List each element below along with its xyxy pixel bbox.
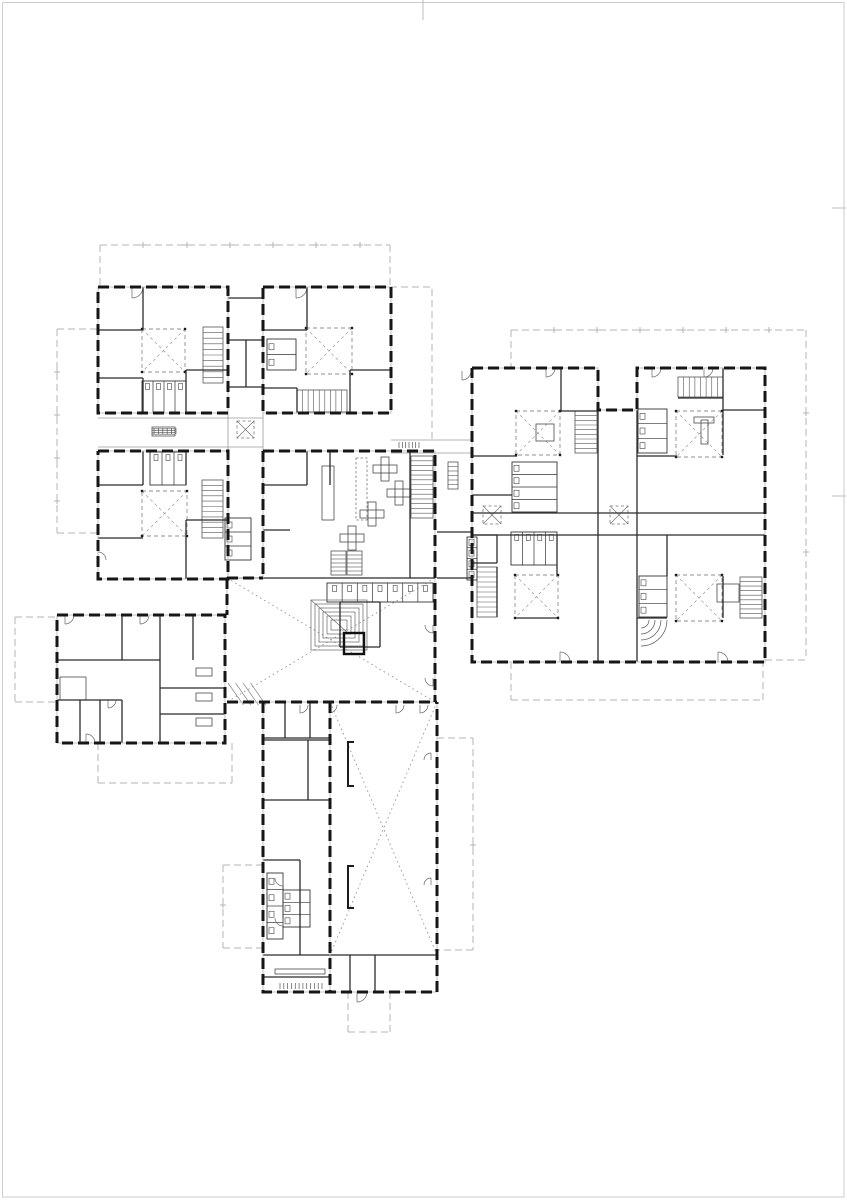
toilet-fixture — [408, 586, 412, 592]
exterior-wall-frame — [263, 287, 391, 413]
furniture — [275, 969, 325, 974]
toilet-fixture — [285, 918, 290, 924]
plus-table — [373, 465, 397, 473]
toilet-fixture — [641, 580, 646, 586]
toilet-fixture — [166, 455, 170, 461]
void-corner-dot — [675, 574, 677, 576]
toilet-fixture — [423, 586, 427, 592]
void-corner-dot — [559, 454, 561, 456]
toilet-fixture — [641, 594, 646, 600]
exterior-wall — [98, 451, 228, 579]
toilet-fixture — [333, 586, 337, 592]
void-corner-dot — [515, 410, 517, 412]
door-swing — [425, 678, 433, 686]
page-border — [3, 3, 845, 1198]
void-corner-dot — [514, 617, 516, 619]
toilet-core — [283, 890, 310, 927]
void-corner-dot — [557, 617, 559, 619]
void-diagonal — [515, 575, 558, 618]
void-diagonal-dotted — [227, 578, 435, 702]
furniture — [60, 677, 86, 700]
furniture — [196, 718, 212, 726]
plus-table — [360, 510, 384, 518]
door-swing — [132, 287, 143, 298]
toilet-fixture — [269, 344, 274, 350]
toilet-fixture — [269, 878, 274, 884]
curved-stair — [641, 620, 655, 634]
door-swing — [300, 705, 308, 713]
exterior-wall — [98, 287, 228, 413]
roof-overhang-dashed — [390, 287, 432, 440]
exterior-wall-frame — [57, 615, 225, 743]
void-corner-dot — [186, 490, 188, 492]
toilet-fixture — [146, 384, 150, 390]
void-corner-dot — [721, 574, 723, 576]
void-corner-dot — [721, 456, 723, 458]
toilet-fixture — [269, 928, 274, 934]
floor-plan-drawing — [0, 0, 847, 1200]
void-corner-dot — [305, 373, 307, 375]
toilet-fixture — [154, 455, 158, 461]
toilet-fixture — [514, 465, 519, 471]
door-swing — [108, 700, 116, 708]
door-swing — [296, 287, 307, 298]
toilet-fixture — [168, 384, 172, 390]
toilet-core — [638, 409, 667, 453]
void-corner-dot — [675, 620, 677, 622]
void-diagonal-dotted — [330, 702, 437, 955]
void-corner-dot — [141, 535, 143, 537]
curved-stair — [641, 620, 667, 646]
curved-stair — [641, 620, 649, 628]
toilet-fixture — [285, 893, 290, 899]
furniture — [196, 668, 212, 676]
shelving — [356, 458, 367, 520]
door-swing — [275, 878, 283, 886]
toilet-fixture — [393, 586, 397, 592]
plus-table — [387, 489, 411, 497]
void-corner-dot — [675, 410, 677, 412]
toilet-fixture — [269, 895, 274, 901]
basketball-backboard — [348, 866, 354, 908]
elevator-core — [344, 633, 364, 654]
stair — [740, 577, 762, 618]
plus-table — [395, 481, 403, 505]
toilet-fixture — [640, 413, 645, 419]
basketball-backboard — [348, 742, 354, 786]
toilet-fixture — [514, 503, 519, 509]
toilet-fixture — [514, 478, 519, 484]
door-swing — [462, 371, 471, 380]
plus-table — [381, 457, 389, 481]
void-corner-dot — [184, 328, 186, 330]
toilet-fixture — [178, 455, 182, 461]
toilet-fixture — [378, 586, 382, 592]
void-corner-dot — [514, 574, 516, 576]
void-diagonal — [516, 411, 560, 455]
exterior-wall — [263, 702, 437, 992]
toilet-fixture — [269, 359, 274, 365]
exterior-wall-frame — [98, 287, 228, 413]
toilet-fixture — [157, 384, 161, 390]
toilet-fixture — [348, 586, 352, 592]
toilet-fixture — [363, 586, 367, 592]
stair — [297, 390, 347, 412]
void-corner-dot — [351, 373, 353, 375]
furniture — [717, 584, 739, 602]
toilet-fixture — [269, 911, 274, 917]
toilet-fixture — [640, 443, 645, 449]
toilet-fixture — [640, 428, 645, 434]
toilet-fixture — [641, 607, 646, 613]
plus-table — [340, 534, 364, 542]
door-swing — [425, 625, 433, 633]
furniture — [701, 420, 708, 444]
toilet-core — [639, 576, 667, 617]
stair — [575, 411, 597, 453]
toilet-fixture — [179, 384, 183, 390]
plus-table — [348, 526, 356, 550]
exterior-wall — [57, 615, 225, 743]
void-corner-dot — [141, 371, 143, 373]
door-swing — [396, 705, 404, 713]
door-swing — [424, 753, 431, 760]
void-corner-dot — [721, 620, 723, 622]
void-diagonal-dotted — [330, 702, 437, 955]
exterior-wall-frame — [98, 451, 228, 579]
toilet-fixture — [285, 906, 290, 912]
toilet-core — [150, 452, 186, 485]
exterior-wall — [263, 287, 391, 413]
toilet-fixture — [514, 490, 519, 496]
plus-table — [368, 502, 376, 526]
floor-plan-page — [0, 0, 847, 1200]
amphitheater-diagonal — [311, 600, 349, 634]
furniture — [322, 466, 334, 520]
exterior-wall-frame — [263, 702, 437, 992]
void-diagonal — [142, 329, 185, 372]
door-swing — [424, 878, 431, 885]
void-corner-dot — [351, 327, 353, 329]
void-corner-dot — [141, 490, 143, 492]
toilet-core — [327, 583, 433, 602]
door-swing — [275, 918, 283, 926]
door-swing — [420, 705, 428, 713]
stair — [202, 480, 223, 538]
furniture — [196, 693, 212, 701]
